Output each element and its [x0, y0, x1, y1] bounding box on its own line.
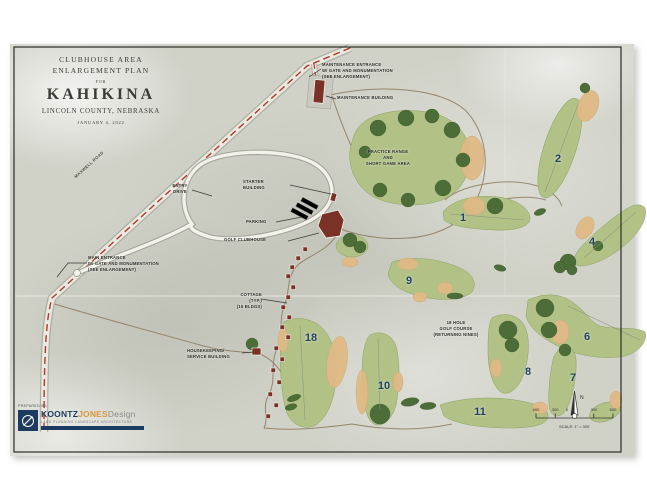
label-housekeeping: HOUSEKEEPING/ SERVICE BUILDING	[187, 348, 230, 360]
main-entrance-gate	[74, 270, 81, 277]
scale-tick-label: 600	[533, 407, 540, 412]
label-entry-drive: ENTRY DRIVE	[168, 183, 192, 195]
scale-tick-label: 600	[610, 407, 617, 412]
designer-logo-block: PREPARED BY: KOONTZJONESDesign LAND PLAN…	[18, 404, 144, 431]
plan-date: JANUARY 4, 2022	[34, 120, 168, 125]
north-arrow-icon: N	[571, 391, 584, 418]
hole-number-4: 4	[589, 236, 595, 248]
housekeeping-building	[252, 348, 261, 355]
logo-koontz: KOONTZ	[41, 409, 78, 419]
hole-number-1: 1	[460, 212, 466, 224]
project-location: LINCOLN COUNTY, NEBRASKA	[34, 108, 168, 115]
plan-title-line1: CLUBHOUSE AREA	[34, 54, 168, 65]
golf-clubhouse-building	[318, 210, 344, 238]
label-cottage: COTTAGE (TYP.) (15 BLDGS)	[226, 292, 262, 310]
scanned-site-plan: 600 300 0 300 600 SCALE: 1" = 300' N CLU…	[0, 0, 647, 500]
plan-title-line2: ENLARGEMENT PLAN	[34, 65, 168, 76]
compass-logo-icon	[18, 410, 38, 431]
logo-bar	[41, 426, 144, 430]
hole-number-18: 18	[305, 332, 317, 344]
project-name: KAHIKINA	[34, 86, 168, 104]
scale-caption: SCALE: 1" = 300'	[559, 424, 590, 429]
label-course-note: 18 HOLE GOLF COURSE (RETURNING NINES)	[424, 320, 488, 338]
label-golf-clubhouse: GOLF CLUBHOUSE	[224, 237, 266, 243]
scale-tick-label: 300	[552, 407, 559, 412]
hole-number-9: 9	[406, 275, 412, 287]
hole-number-11: 11	[474, 406, 486, 418]
logo-jones: JONES	[78, 409, 108, 419]
scale-tick-label: 300	[590, 407, 597, 412]
logo-design: Design	[108, 409, 136, 419]
label-starter-building: STARTER BUILDING	[243, 179, 265, 191]
label-maintenance-building: MAINTENANCE BUILDING	[337, 95, 393, 101]
plan-title-for: FOR	[34, 79, 168, 84]
label-parking: PARKING	[246, 219, 266, 225]
hole-number-8: 8	[525, 366, 531, 378]
hole-number-10: 10	[378, 380, 390, 392]
label-practice-range: PRACTICE RANGE AND SHORT GAME AREA	[358, 149, 418, 167]
hole-number-2: 2	[555, 153, 561, 165]
logo-tagline: LAND PLANNING LANDSCAPE ARCHITECTURE	[41, 420, 144, 424]
logo-name: KOONTZJONESDesign	[41, 410, 144, 419]
title-block: CLUBHOUSE AREA ENLARGEMENT PLAN FOR KAHI…	[34, 54, 168, 125]
label-maintenance-entrance: MAINTENANCE ENTRANCE W/ GATE AND MONUMEN…	[322, 62, 393, 80]
label-main-entrance: MAIN ENTRANCE W/ GATE AND MONUMENTATION …	[88, 255, 159, 273]
scale-tick-label: 0	[566, 407, 569, 412]
prepared-by-label: PREPARED BY:	[18, 404, 144, 408]
hole-number-7: 7	[570, 372, 576, 384]
hole-number-6: 6	[584, 331, 590, 343]
north-label: N	[580, 395, 584, 401]
